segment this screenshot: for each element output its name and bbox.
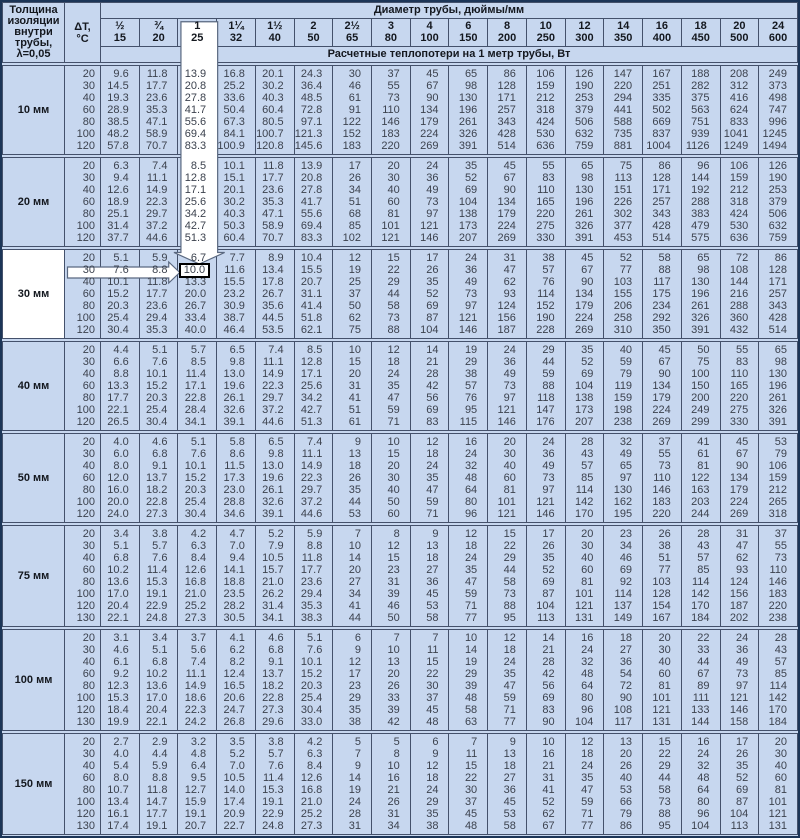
heat-loss-value: 76	[449, 392, 487, 404]
heat-loss-value: 7.4	[140, 160, 178, 172]
heat-loss-values-cell: 1421284256698390	[526, 630, 565, 731]
heat-loss-value: 50	[333, 300, 371, 312]
insulation-thickness-value: 20 мм	[3, 158, 65, 247]
delta-t-value: 30	[65, 356, 100, 368]
heat-loss-value: 86	[604, 820, 642, 832]
heat-loss-value: 22.3	[178, 704, 216, 716]
heat-loss-value: 198	[604, 404, 642, 416]
heat-loss-value: 30.5	[217, 612, 255, 624]
heat-loss-value: 38.3	[295, 612, 333, 624]
heat-loss-value: 79	[759, 448, 797, 460]
heat-loss-value: 69.4	[178, 128, 216, 140]
heat-loss-value: 9	[333, 436, 371, 448]
heat-loss-value: 5.6	[178, 644, 216, 656]
heat-loss-value: 22.3	[256, 380, 294, 392]
heat-loss-value: 134	[488, 196, 526, 208]
heat-loss-value: 10.1	[178, 460, 216, 472]
heat-loss-value: 11.8	[256, 160, 294, 172]
heat-loss-value: 36	[411, 172, 449, 184]
heat-loss-value: 23.6	[256, 184, 294, 196]
heat-loss-value: 146	[372, 116, 410, 128]
heat-loss-value: 6.4	[178, 760, 216, 772]
heat-loss-value: 104	[682, 820, 720, 832]
heat-loss-value: 12	[411, 436, 449, 448]
heat-loss-value: 939	[682, 128, 720, 140]
heat-loss-value: 67.3	[217, 116, 255, 128]
heat-loss-value: 5.1	[140, 344, 178, 356]
heat-loss-value: 16.8	[295, 784, 333, 796]
heat-loss-values-cell: 5.88.611.517.323.028.834.6	[217, 434, 256, 523]
heat-loss-value: 24	[449, 448, 487, 460]
heat-loss-value: 35.3	[256, 196, 294, 208]
heat-loss-value: 11	[411, 644, 449, 656]
heat-loss-value: 115	[449, 416, 487, 428]
heat-loss-value: 23.6	[140, 300, 178, 312]
heat-loss-value: 326	[682, 312, 720, 324]
heat-loss-value: 77	[566, 820, 604, 832]
heat-loss-value: 35.3	[140, 324, 178, 336]
heat-loss-value: 35	[566, 344, 604, 356]
heat-loss-value: 288	[682, 196, 720, 208]
heat-loss-values-cell: 6598130196261326391	[449, 66, 488, 155]
heat-loss-values-cell: 375573110146183220	[372, 66, 411, 155]
heat-loss-value: 751	[682, 116, 720, 128]
heat-loss-values-cell: 3.24.86.49.512.715.919.120.7	[178, 734, 217, 835]
heat-loss-value: 85	[566, 472, 604, 484]
heat-loss-value: 216	[721, 288, 759, 300]
heat-loss-value: 41.4	[295, 300, 333, 312]
heat-loss-value: 16	[372, 772, 410, 784]
heat-loss-value: 8.2	[217, 656, 255, 668]
heat-loss-values-cell: 6.59.813.019.626.132.639.1	[217, 342, 256, 431]
heat-loss-value: 45	[488, 160, 526, 172]
delta-t-values-cell: 2030406080100120	[65, 158, 101, 247]
heat-loss-value: 31	[333, 820, 371, 832]
heat-loss-value: 73	[449, 288, 487, 300]
heat-loss-values-cell: 1218243547597177	[449, 526, 488, 627]
heat-loss-value: 4.6	[140, 436, 178, 448]
heat-loss-value: 49	[411, 184, 449, 196]
heat-loss-value: 10.2	[101, 564, 139, 576]
heat-loss-value: 62	[488, 276, 526, 288]
heat-loss-value: 48	[449, 820, 487, 832]
group-50-мм: 50 мм20304060801001204.06.08.012.016.020…	[2, 433, 798, 523]
delta-t-value: 60	[65, 564, 100, 576]
pipe-size-mm: 400	[643, 32, 681, 44]
heat-loss-value: 36	[488, 356, 526, 368]
heat-loss-value: 37	[333, 288, 371, 300]
heat-loss-value: 29	[449, 668, 487, 680]
heat-loss-values-cell: 913182736455358	[410, 526, 449, 627]
heat-loss-value: 62.1	[295, 324, 333, 336]
heat-loss-value: 37.2	[295, 496, 333, 508]
heat-loss-value: 73	[411, 196, 449, 208]
heat-loss-value: 8.8	[295, 540, 333, 552]
heat-loss-value: 8	[372, 528, 410, 540]
heat-loss-value: 142	[759, 692, 797, 704]
heat-loss-value: 167	[643, 68, 681, 80]
heat-loss-value: 50	[372, 612, 410, 624]
heat-loss-value: 34.1	[178, 416, 216, 428]
heat-loss-value: 20.3	[140, 392, 178, 404]
group-30-мм: 30 мм20304060801001205.17.610.115.220.32…	[2, 249, 798, 339]
heat-loss-value: 38.5	[101, 116, 139, 128]
heat-loss-value: 49	[527, 460, 565, 472]
heat-loss-value: 14.1	[217, 564, 255, 576]
heat-loss-value: 15.3	[256, 784, 294, 796]
heat-loss-value: 17.0	[140, 692, 178, 704]
heat-loss-values-cell: 375573110146183220238	[759, 526, 798, 627]
heat-loss-value: 17	[411, 252, 449, 264]
heat-loss-value: 52	[604, 252, 642, 264]
heat-loss-value: 46	[333, 80, 371, 92]
heat-loss-value: 514	[643, 232, 681, 244]
heat-loss-value: 6.8	[140, 448, 178, 460]
heat-loss-values-cell: 2334466992114137149	[604, 526, 643, 627]
group-40-мм: 40 мм20304060801001204.46.68.813.317.722…	[2, 341, 798, 431]
heat-loss-value: 196	[449, 104, 487, 116]
heat-loss-value: 137	[604, 600, 642, 612]
heat-loss-value: 747	[759, 104, 797, 116]
heat-loss-value: 179	[566, 300, 604, 312]
heat-loss-value: 6.3	[178, 540, 216, 552]
heat-loss-value: 190	[527, 312, 565, 324]
heat-loss-value: 10	[527, 736, 565, 748]
heat-loss-value: 10	[372, 436, 410, 448]
heat-loss-value: 220	[527, 208, 565, 220]
heat-loss-value: 51	[333, 196, 371, 208]
heat-loss-value: 7.6	[140, 552, 178, 564]
heat-loss-value: 36	[411, 576, 449, 588]
heat-loss-value: 52	[566, 356, 604, 368]
heat-loss-value: 24	[721, 632, 759, 644]
heat-loss-value: 20.9	[217, 808, 255, 820]
heat-loss-value: 49	[449, 276, 487, 288]
heat-loss-value: 179	[643, 392, 681, 404]
heat-loss-value: 35	[411, 472, 449, 484]
heat-loss-value: 84.1	[217, 128, 255, 140]
heat-loss-value: 19.1	[256, 796, 294, 808]
heat-loss-value: 15.5	[295, 264, 333, 276]
heat-loss-values-cell: 30466191122152183	[333, 66, 372, 155]
heat-loss-value: 15	[449, 760, 487, 772]
heat-loss-value: 114	[759, 680, 797, 692]
heat-loss-value: 43	[566, 448, 604, 460]
header-table: Толщина изоляции внутри трубы, λ=0,05ΔT,…	[2, 2, 798, 63]
heat-loss-values-cell: 5.98.811.817.723.629.435.338.3	[294, 526, 333, 627]
heat-loss-value: 15.2	[140, 380, 178, 392]
heat-loss-value: 20.8	[295, 172, 333, 184]
heat-loss-value: 506	[759, 208, 797, 220]
heat-loss-value: 44	[333, 612, 371, 624]
heat-loss-value: 68	[333, 208, 371, 220]
heat-loss-value: 83	[527, 704, 565, 716]
heat-loss-value: 45	[449, 808, 487, 820]
pipe-size-column-header: 16400	[643, 19, 682, 46]
heat-loss-value: 29	[372, 276, 410, 288]
heat-loss-value: 8.8	[140, 264, 178, 276]
heat-loss-value: 73	[643, 796, 681, 808]
heat-loss-value: 30	[488, 448, 526, 460]
heat-loss-value: 759	[759, 232, 797, 244]
heat-loss-value: 73	[488, 588, 526, 600]
heat-loss-value: 61	[333, 92, 371, 104]
heat-loss-value: 81	[643, 680, 681, 692]
heat-loss-value: 31.1	[295, 288, 333, 300]
heat-loss-value: 4.6	[101, 644, 139, 656]
heat-loss-value: 134	[721, 472, 759, 484]
heat-loss-value: 5	[372, 736, 410, 748]
heat-loss-value: 224	[721, 496, 759, 508]
pipe-size-column-header: 24600	[759, 19, 798, 46]
heat-loss-value: 55	[759, 540, 797, 552]
heat-loss-value: 44	[643, 772, 681, 784]
heat-loss-value: 636	[527, 140, 565, 152]
heat-loss-value: 170	[566, 508, 604, 520]
heat-loss-value: 146	[527, 508, 565, 520]
heat-loss-value: 40	[604, 344, 642, 356]
heat-loss-value: 17.7	[140, 808, 178, 820]
heat-loss-value: 220	[721, 392, 759, 404]
heat-loss-value: 16	[566, 632, 604, 644]
heat-loss-value: 4.1	[217, 632, 255, 644]
heat-loss-values-cell: 20.130.240.360.480.5100.7120.8	[255, 66, 294, 155]
pipe-size-column-header: 18450	[681, 19, 720, 46]
heat-loss-value: 36	[449, 264, 487, 276]
heat-loss-value: 5.2	[217, 748, 255, 760]
delta-t-value: 100	[65, 220, 100, 232]
heat-loss-value: 4.2	[295, 736, 333, 748]
heat-loss-value: 110	[527, 184, 565, 196]
heat-loss-value: 53	[759, 436, 797, 448]
heat-loss-value: 24	[449, 252, 487, 264]
heat-loss-value: 67	[721, 448, 759, 460]
heat-loss-value: 97	[488, 392, 526, 404]
heat-loss-value: 22.8	[178, 392, 216, 404]
heat-loss-value: 253	[566, 92, 604, 104]
heat-loss-value: 14	[333, 552, 371, 564]
heat-loss-value: 29.4	[295, 588, 333, 600]
heat-loss-value: 104	[411, 324, 449, 336]
heat-loss-value: 16	[682, 736, 720, 748]
pipe-size-mm: 100	[411, 32, 449, 44]
delta-t-value: 60	[65, 104, 100, 116]
heat-loss-value: 71	[411, 508, 449, 520]
heat-loss-value: 59	[488, 692, 526, 704]
heat-loss-value: 24	[566, 760, 604, 772]
heat-loss-value: 36	[527, 448, 565, 460]
heat-loss-value: 13.0	[217, 368, 255, 380]
heat-loss-value: 5.7	[140, 540, 178, 552]
heat-loss-value: 50.3	[217, 220, 255, 232]
heat-loss-value: 14.9	[178, 680, 216, 692]
heat-loss-value: 12.0	[101, 472, 139, 484]
heat-loss-value: 50	[682, 344, 720, 356]
delta-t-value: 30	[65, 748, 100, 760]
heat-loss-value: 514	[759, 324, 797, 336]
heat-loss-value: 8.4	[178, 552, 216, 564]
heat-loss-value: 114	[604, 588, 642, 600]
pipe-size-mm: 25	[178, 32, 216, 44]
heat-loss-value: 16	[527, 748, 565, 760]
heat-loss-value: 97	[604, 472, 642, 484]
heat-loss-value: 343	[488, 116, 526, 128]
heat-loss-values-cell: 69121824293538	[410, 734, 449, 835]
delta-t-values-cell: 2030406080100120130	[65, 630, 101, 731]
heat-loss-value: 26.1	[217, 392, 255, 404]
heat-loss-value: 881	[604, 140, 642, 152]
heat-loss-value: 379	[566, 104, 604, 116]
heat-loss-value: 159	[527, 80, 565, 92]
heat-loss-value: 3.8	[256, 736, 294, 748]
heat-loss-value: 20.7	[178, 820, 216, 832]
heat-loss-value: 58	[372, 300, 410, 312]
heat-loss-value: 66	[604, 796, 642, 808]
heat-loss-value: 147	[527, 404, 565, 416]
heat-loss-value: 20.1	[256, 68, 294, 80]
heat-loss-value: 12.4	[217, 668, 255, 680]
heat-loss-values-cell: 2.94.45.98.811.814.717.719.1	[139, 734, 178, 835]
delta-t-value: 30	[65, 448, 100, 460]
heat-loss-value: 12.8	[295, 356, 333, 368]
heat-loss-value: 63	[449, 716, 487, 728]
heat-loss-value: 30	[643, 644, 681, 656]
heat-loss-value: 196	[566, 196, 604, 208]
pipe-size-mm: 150	[449, 32, 487, 44]
pipe-size-mm: 300	[566, 32, 604, 44]
heat-loss-value: 45	[566, 252, 604, 264]
heat-loss-value: 144	[682, 716, 720, 728]
delta-t-value: 120	[65, 324, 100, 336]
heat-loss-value: 275	[527, 220, 565, 232]
heat-loss-value: 19.1	[140, 588, 178, 600]
heat-loss-value: 192	[682, 184, 720, 196]
heat-loss-values-cell: 172635526987104113	[720, 734, 759, 835]
heat-loss-value: 234	[643, 300, 681, 312]
heat-loss-value: 330	[721, 416, 759, 428]
heat-loss-value: 224	[411, 128, 449, 140]
heat-loss-value: 18	[372, 356, 410, 368]
heat-loss-value: 97	[527, 484, 565, 496]
heat-loss-value: 636	[721, 232, 759, 244]
heat-loss-value: 27.3	[295, 820, 333, 832]
heat-loss-value: 294	[604, 92, 642, 104]
heat-loss-value: 29	[643, 760, 681, 772]
delta-t-value: 20	[65, 160, 100, 172]
heat-loss-value: 220	[643, 508, 681, 520]
heat-loss-values-cell: 26385177103128154167	[643, 526, 682, 627]
delta-t-value: 130	[65, 612, 100, 624]
heat-loss-values-cell: 6.39.412.618.925.131.437.7	[101, 158, 140, 247]
heat-loss-value: 32.6	[256, 496, 294, 508]
heat-loss-value: 47.1	[256, 208, 294, 220]
heat-loss-value: 173	[566, 404, 604, 416]
heat-loss-values-cell: 16243248648096104	[565, 630, 604, 731]
heat-loss-value: 20	[372, 460, 410, 472]
heat-loss-value: 22	[682, 632, 720, 644]
heat-loss-value: 5.2	[256, 528, 294, 540]
heat-loss-value: 22.9	[256, 808, 294, 820]
heat-loss-value: 14.9	[140, 184, 178, 196]
heat-loss-value: 7.4	[295, 436, 333, 448]
heat-loss-value: 25.2	[178, 600, 216, 612]
heat-loss-value: 28.2	[217, 600, 255, 612]
delta-t-header: ΔT,°C	[65, 3, 101, 63]
heat-loss-value: 10	[372, 760, 410, 772]
heat-loss-value: 45	[643, 344, 681, 356]
heat-loss-value: 121	[721, 692, 759, 704]
heat-loss-value: 26	[372, 680, 410, 692]
heat-loss-value: 142	[566, 496, 604, 508]
pipe-size-column-header: 12300	[565, 19, 604, 46]
heat-loss-value: 391	[682, 324, 720, 336]
heat-loss-value: 156	[721, 588, 759, 600]
heat-loss-value: 21	[527, 644, 565, 656]
heat-loss-value: 21	[527, 760, 565, 772]
heat-loss-value: 28.9	[101, 104, 139, 116]
heat-loss-value: 17.7	[101, 392, 139, 404]
heat-loss-value: 6	[333, 632, 371, 644]
heat-loss-value: 48.5	[295, 92, 333, 104]
heat-loss-value: 90	[604, 692, 642, 704]
heat-loss-value: 2.9	[140, 736, 178, 748]
heat-loss-value: 121	[643, 704, 681, 716]
heat-loss-value: 31	[372, 808, 410, 820]
heat-loss-values-cell: 710142027344144	[333, 526, 372, 627]
heat-loss-value: 67	[488, 172, 526, 184]
heat-loss-value: 71	[488, 704, 526, 716]
heat-loss-value: 15	[643, 736, 681, 748]
heat-loss-value: 183	[759, 588, 797, 600]
heat-loss-values-cell: 4.26.38.412.616.821.025.227.3	[294, 734, 333, 835]
heat-loss-value: 144	[721, 276, 759, 288]
heat-loss-value: 67	[682, 668, 720, 680]
heat-loss-value: 8.0	[101, 460, 139, 472]
heat-loss-value: 20.4	[101, 600, 139, 612]
heat-loss-value: 343	[643, 208, 681, 220]
heat-loss-value: 29	[527, 344, 565, 356]
heat-loss-value: 61	[682, 448, 720, 460]
heat-loss-value: 38	[643, 540, 681, 552]
heat-loss-value: 121	[566, 600, 604, 612]
heat-loss-value: 40	[759, 760, 797, 772]
heat-loss-value: 24.8	[256, 820, 294, 832]
heat-loss-value: 44	[488, 564, 526, 576]
heat-loss-value: 26.7	[178, 300, 216, 312]
heat-loss-value: 35	[411, 808, 449, 820]
heat-loss-value: 11.1	[256, 356, 294, 368]
heat-loss-value: 60	[759, 772, 797, 784]
heat-loss-value: 44	[372, 288, 410, 300]
heat-loss-value: 17.1	[178, 380, 216, 392]
heat-loss-value: 391	[449, 140, 487, 152]
heat-loss-value: 121.3	[295, 128, 333, 140]
heat-loss-value: 5.4	[101, 760, 139, 772]
heat-loss-values-cell: 14212842566983	[410, 342, 449, 431]
heat-loss-value: 224	[488, 220, 526, 232]
delta-t-value: 120	[65, 232, 100, 244]
heat-loss-value: 131	[643, 716, 681, 728]
heat-loss-values-cell: 106159212318424530636	[720, 158, 759, 247]
heat-loss-value: 134	[643, 380, 681, 392]
heat-loss-value: 29.7	[256, 392, 294, 404]
heat-loss-value: 60.4	[256, 104, 294, 116]
pipe-size-column-header: 250	[294, 19, 333, 46]
heat-loss-value: 44	[333, 496, 371, 508]
heat-loss-value: 44.6	[256, 416, 294, 428]
heat-loss-value: 77	[488, 716, 526, 728]
heat-loss-value: 14	[449, 644, 487, 656]
